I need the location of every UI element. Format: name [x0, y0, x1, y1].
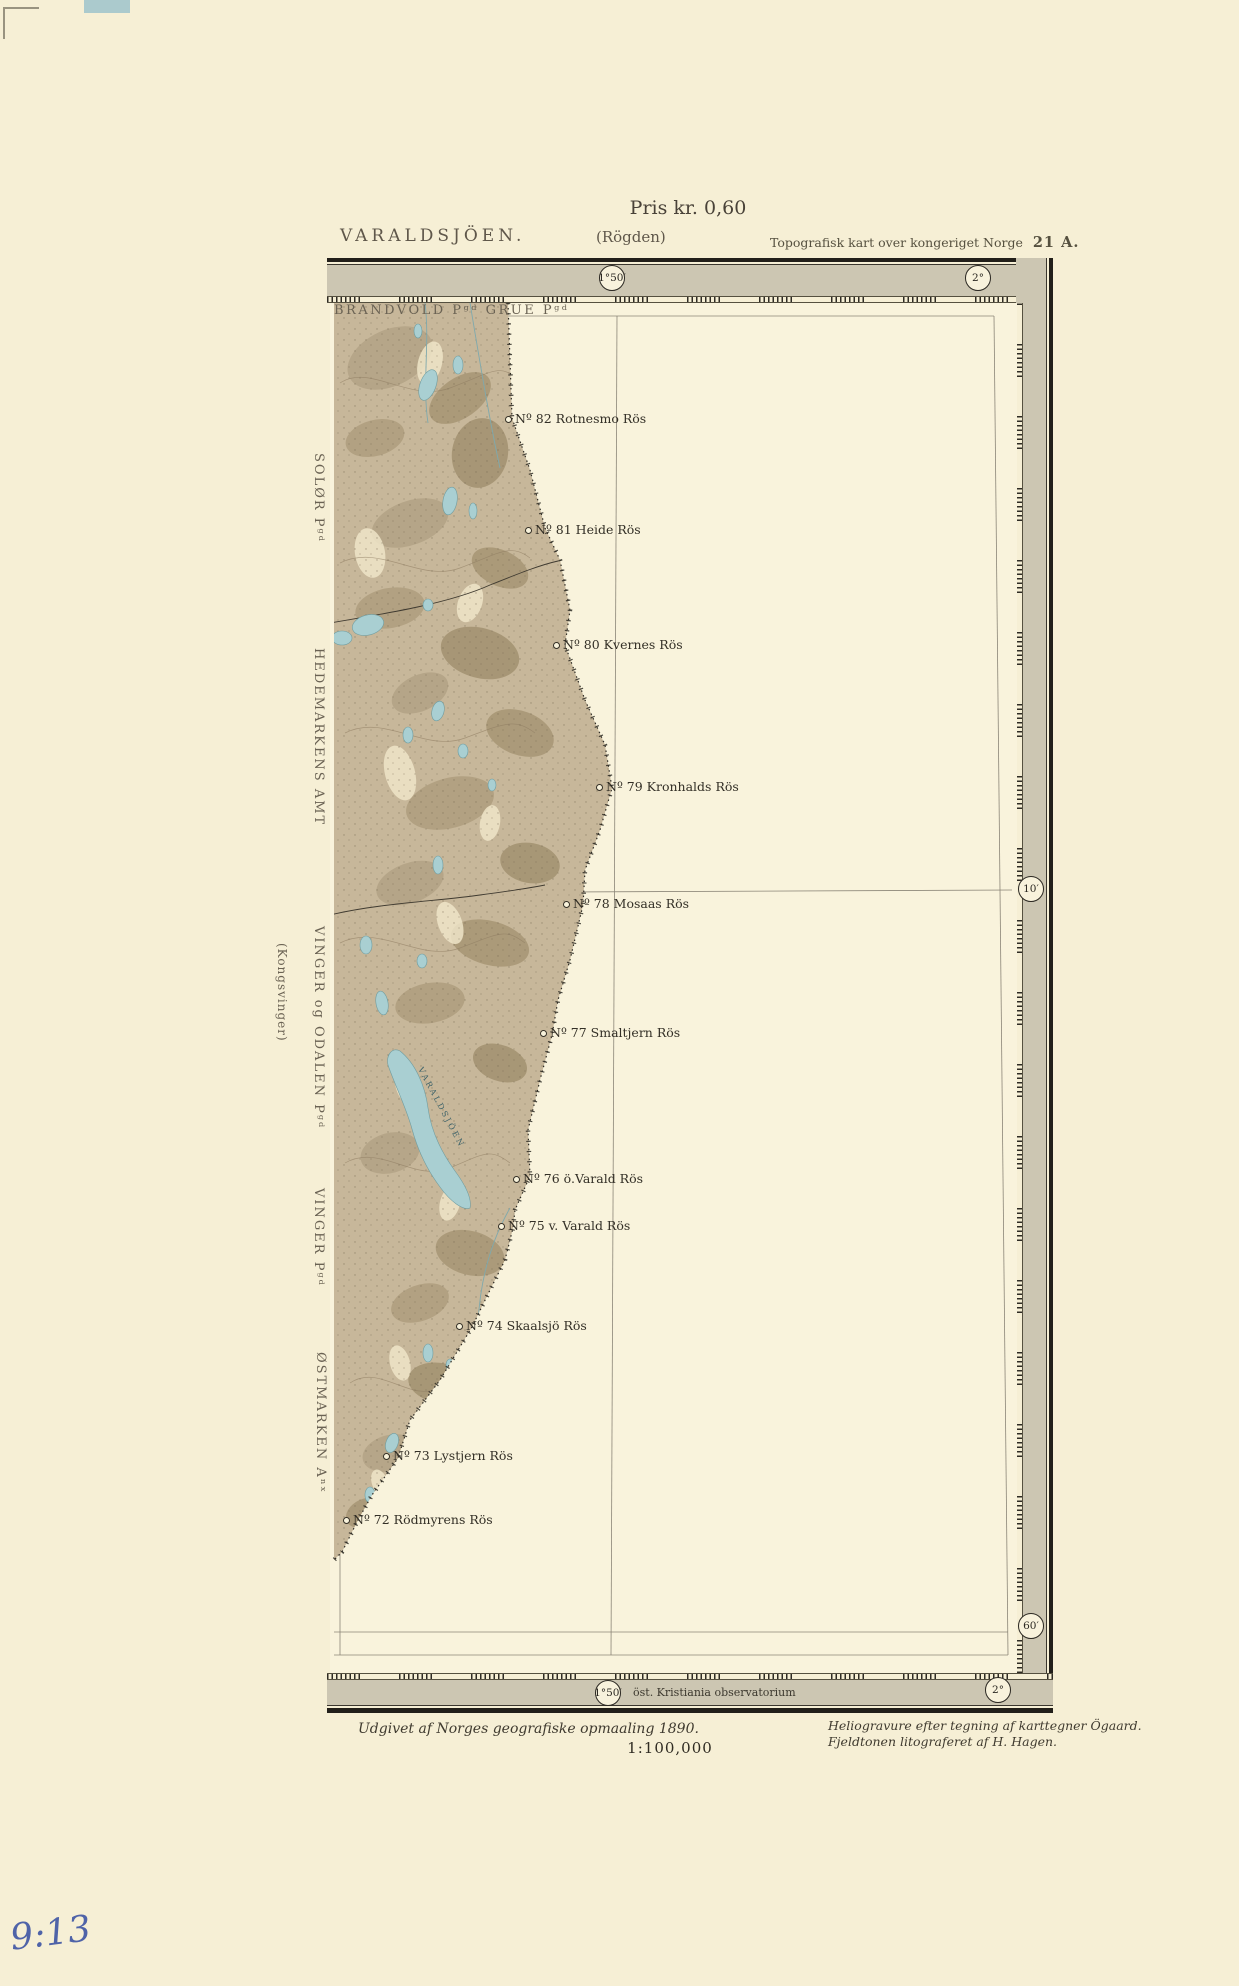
- meridian-reference-note: öst. Kristiania observatorium: [633, 1686, 796, 1699]
- terrain-shading: VARALDSJÖEN: [330, 303, 630, 1673]
- cairn-marker-icon: [513, 1176, 520, 1183]
- cairn-label-82: Nº 82 Rotnesmo Rös: [505, 411, 646, 426]
- cairn-label-76: Nº 76 ö.Varald Rös: [513, 1171, 643, 1186]
- cairn-marker-icon: [540, 1030, 547, 1037]
- cairn-marker-icon: [383, 1453, 390, 1460]
- engraver-credit: Heliogravure efter tegning af karttegner…: [828, 1718, 1142, 1749]
- graticule-circle-top-left: 1°50′: [599, 265, 625, 291]
- cairn-marker-icon: [505, 416, 512, 423]
- cairn-label-74: Nº 74 Skaalsjö Rös: [456, 1318, 587, 1333]
- map-artwork: VARALDSJÖEN: [330, 303, 1017, 1673]
- cairn-label-78: Nº 78 Mosaas Rös: [563, 896, 689, 911]
- cairn-label-75: Nº 75 v. Varald Rös: [498, 1218, 630, 1233]
- scale-bar-bottom: [327, 1673, 1053, 1680]
- graticule-circle-right-60: 60′: [1018, 1613, 1044, 1639]
- map-sheet-page: Pris kr. 0,60 VARALDSJÖEN. (Rögden) Topo…: [0, 0, 1239, 1986]
- margin-label-ostmarken: ØSTMARKEN Aⁿˣ: [313, 1352, 328, 1494]
- map-canvas: VARALDSJÖEN: [330, 303, 1017, 1673]
- graticule-circle-right-10: 10′: [1018, 876, 1044, 902]
- cairn-label-79: Nº 79 Kronhalds Rös: [596, 779, 739, 794]
- price-label: Pris kr. 0,60: [588, 197, 788, 219]
- cairn-label-77: Nº 77 Smaltjern Rös: [540, 1025, 680, 1040]
- graticule-circle-bottom-right: 2°: [985, 1677, 1011, 1703]
- cairn-label-80: Nº 80 Kvernes Rös: [553, 637, 683, 652]
- sheet-title: VARALDSJÖEN.: [340, 226, 525, 246]
- margin-label-vinger-odalen: VINGER og ODALEN Pᵍᵈ: [311, 926, 326, 1129]
- corner-registration-mark: [3, 7, 39, 39]
- series-text: Topografisk kart over kongeriget Norge: [770, 235, 1023, 250]
- margin-label-vinger: VINGER Pᵍᵈ: [311, 1188, 326, 1287]
- cairn-marker-icon: [456, 1323, 463, 1330]
- margin-label-hedemarkens-amt: HEDEMARKENS AMT: [311, 648, 326, 826]
- series-title: Topografisk kart over kongeriget Norge21…: [770, 234, 1079, 251]
- neighbour-sheet-label-top: BRANDVOLD Pᵍᵈ GRUE Pᵍᵈ: [334, 303, 569, 318]
- frame-band-right: [1016, 258, 1053, 1713]
- cairn-marker-icon: [343, 1517, 350, 1524]
- cairn-marker-icon: [553, 642, 560, 649]
- frame-band-top: [327, 258, 1053, 303]
- sheet-number: 21 A.: [1033, 234, 1080, 251]
- scale-bar-right: [1016, 303, 1023, 1673]
- cairn-marker-icon: [596, 784, 603, 791]
- scale-bar-top: [327, 296, 1053, 303]
- map-scale: 1:100,000: [600, 1739, 740, 1757]
- cairn-marker-icon: [563, 901, 570, 908]
- margin-label-solor: SOLØR Pᵍᵈ: [311, 453, 326, 543]
- engraver-credit-line2: Fjeldtonen litograferet af H. Hagen.: [828, 1734, 1142, 1750]
- cairn-marker-icon: [525, 527, 532, 534]
- blue-edge-tab: [84, 0, 130, 13]
- cairn-marker-icon: [498, 1223, 505, 1230]
- margin-label-kongsvinger: (Kongsvinger): [275, 943, 289, 1042]
- handwritten-archive-number: 9:13: [8, 1908, 93, 1959]
- cairn-label-73: Nº 73 Lystjern Rös: [383, 1448, 513, 1463]
- graticule-circle-bottom-left: 1°50′: [595, 1680, 621, 1706]
- graticule-circle-top-right: 2°: [965, 265, 991, 291]
- sheet-subtitle: (Rögden): [596, 228, 666, 246]
- engraver-credit-line1: Heliogravure efter tegning af karttegner…: [828, 1718, 1142, 1734]
- cairn-label-72: Nº 72 Rödmyrens Rös: [343, 1512, 493, 1527]
- cairn-label-81: Nº 81 Heide Rös: [525, 522, 641, 537]
- publisher-credit: Udgivet af Norges geografiske opmaaling …: [358, 1721, 699, 1737]
